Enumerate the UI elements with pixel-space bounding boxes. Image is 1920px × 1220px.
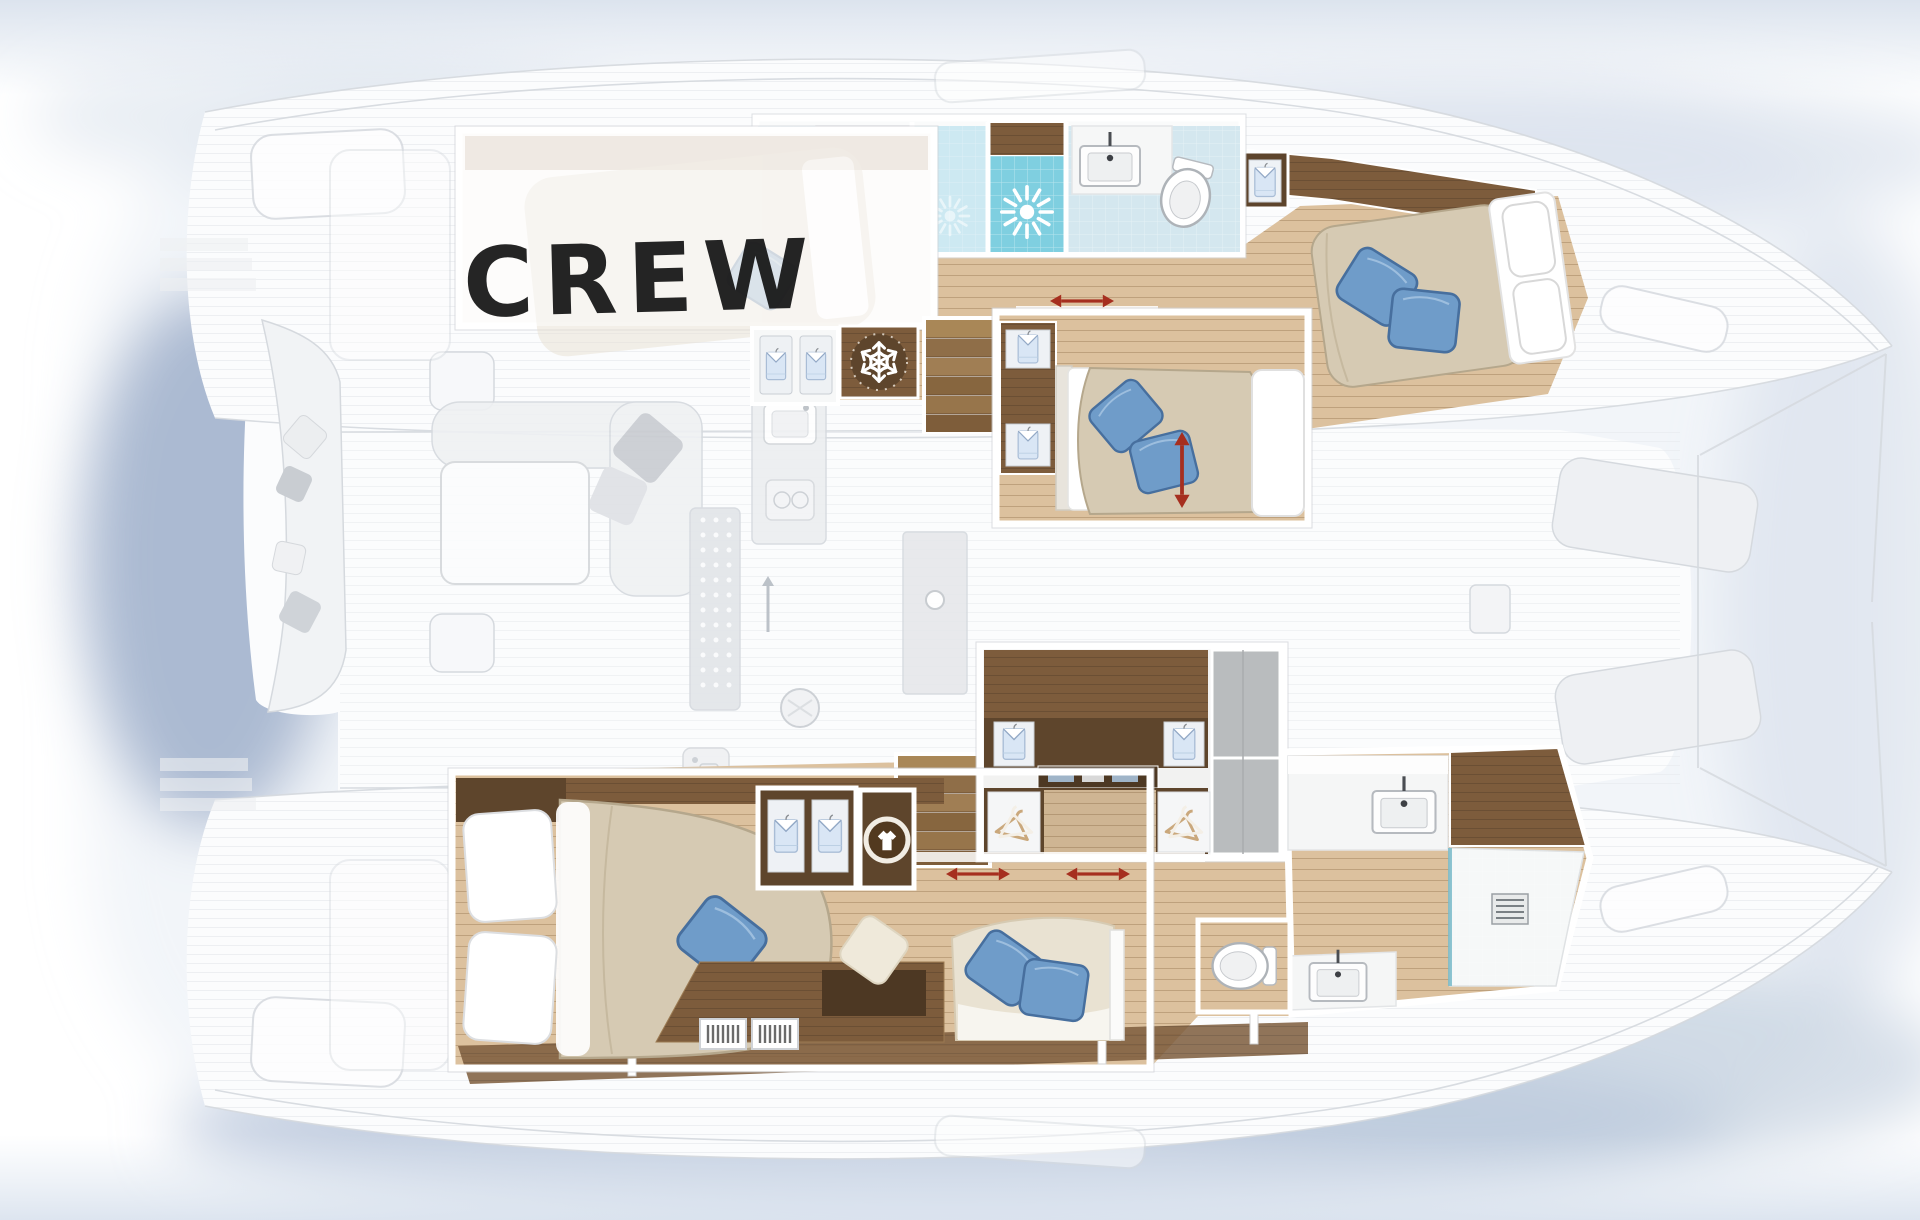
cockpit-pillow	[271, 540, 307, 576]
shirt-icon	[1003, 724, 1025, 759]
shirt-icon	[1018, 427, 1038, 459]
shirt-icon	[1255, 163, 1275, 196]
wardrobe-locker	[758, 788, 856, 888]
dressing-area	[976, 642, 1288, 862]
shirt-icon	[766, 348, 785, 379]
locker-panel	[752, 328, 838, 404]
drain-grille	[1492, 894, 1528, 924]
tambour-panel	[1044, 790, 1156, 854]
catamaran-floorplan: CREW	[0, 0, 1920, 1220]
saloon-table	[441, 462, 589, 584]
vent-grille	[752, 1019, 798, 1049]
grey-cabinet	[1212, 650, 1280, 854]
white-pillow	[1512, 278, 1568, 356]
windlass	[1470, 585, 1510, 633]
white-pillow	[1501, 200, 1557, 278]
galley-sink	[764, 404, 816, 444]
vent-grille	[700, 1019, 746, 1049]
blue-pillow	[1018, 958, 1089, 1022]
white-pillow	[462, 931, 557, 1045]
shirt-icon	[806, 348, 825, 379]
shirt-icon	[1018, 331, 1038, 363]
mid-cabin	[992, 295, 1312, 528]
toilet-icon	[1213, 943, 1277, 989]
wardrobe-locker	[1000, 322, 1056, 474]
blue-pillow	[1388, 288, 1461, 354]
saloon-door	[903, 532, 967, 694]
stairs-top-hull	[922, 316, 998, 434]
galley-cooktop	[766, 480, 814, 520]
door-knob	[926, 591, 944, 609]
toilet-nook	[1198, 920, 1290, 1012]
shower-cabinet	[988, 122, 1066, 156]
sofa	[952, 918, 1124, 1040]
crew-label: CREW	[462, 218, 821, 339]
washing-machine	[860, 790, 914, 888]
shirt-icon	[1173, 724, 1195, 759]
upper-cabinet	[984, 650, 1208, 718]
shirt-icon	[775, 815, 798, 852]
white-pillow	[462, 809, 557, 923]
shirt-icon	[819, 815, 842, 852]
sliding-door-track	[905, 852, 1205, 862]
deck-hatch	[690, 508, 740, 710]
wardrobe-locker	[1242, 152, 1288, 208]
cockpit-seat	[430, 614, 494, 672]
crew-cabin: CREW	[455, 126, 938, 359]
refrigerator-panel	[840, 326, 918, 398]
